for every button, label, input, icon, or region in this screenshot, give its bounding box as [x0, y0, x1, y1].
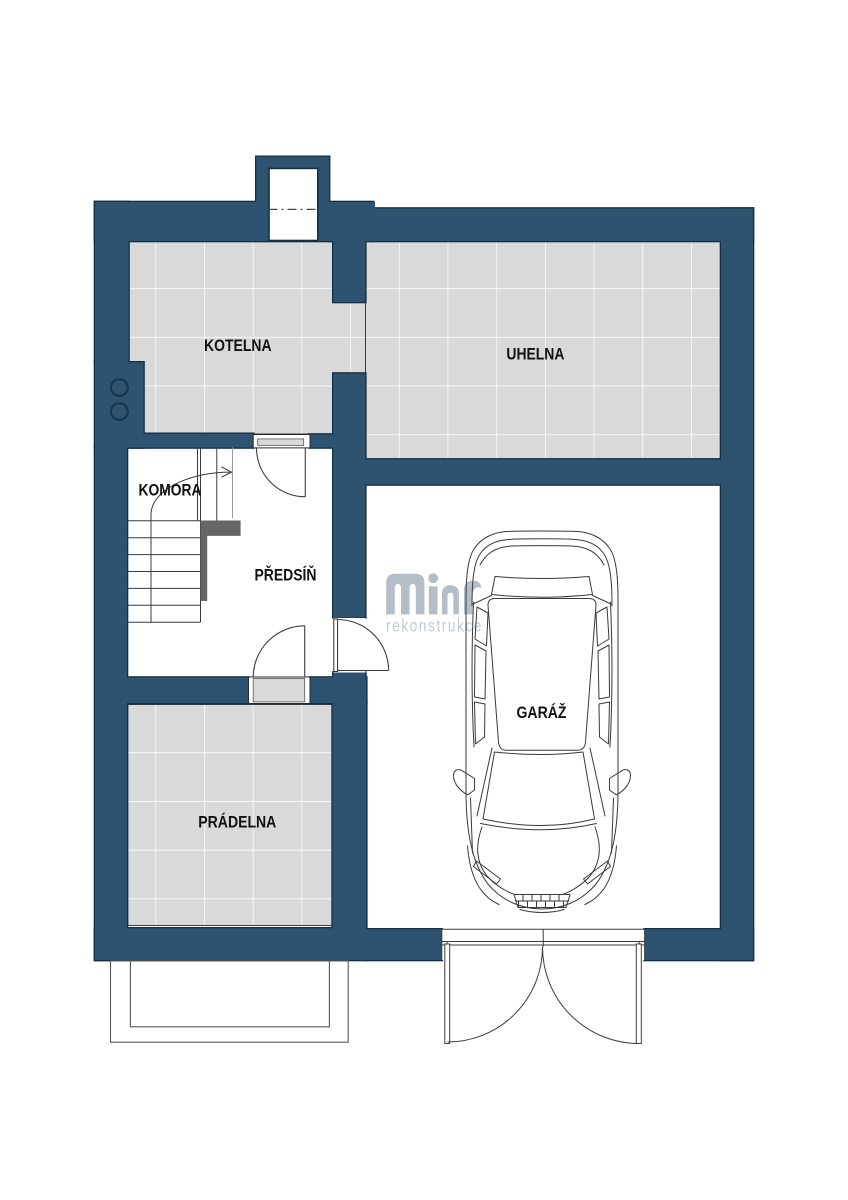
svg-text:GARÁŽ: GARÁŽ [517, 703, 567, 722]
svg-text:KOMORA: KOMORA [139, 482, 202, 500]
svg-text:rekonstrukce: rekonstrukce [386, 617, 483, 636]
svg-text:PRÁDELNA: PRÁDELNA [198, 813, 276, 832]
svg-text:KOTELNA: KOTELNA [204, 337, 272, 355]
svg-text:UHELNA: UHELNA [506, 346, 564, 364]
svg-text:PŘEDSÍŇ: PŘEDSÍŇ [255, 566, 317, 585]
